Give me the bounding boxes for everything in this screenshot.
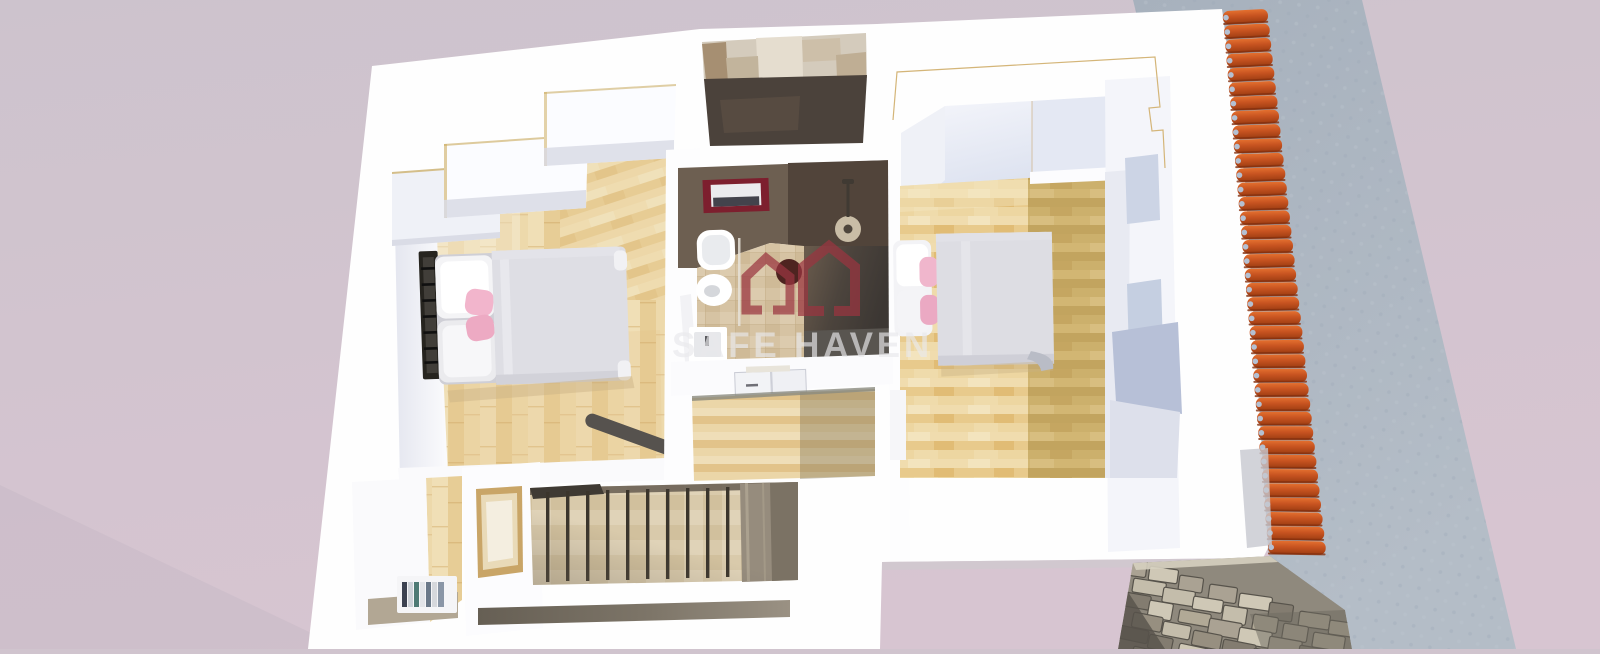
- svg-text:SAFE HAVEN: SAFE HAVEN: [672, 326, 933, 365]
